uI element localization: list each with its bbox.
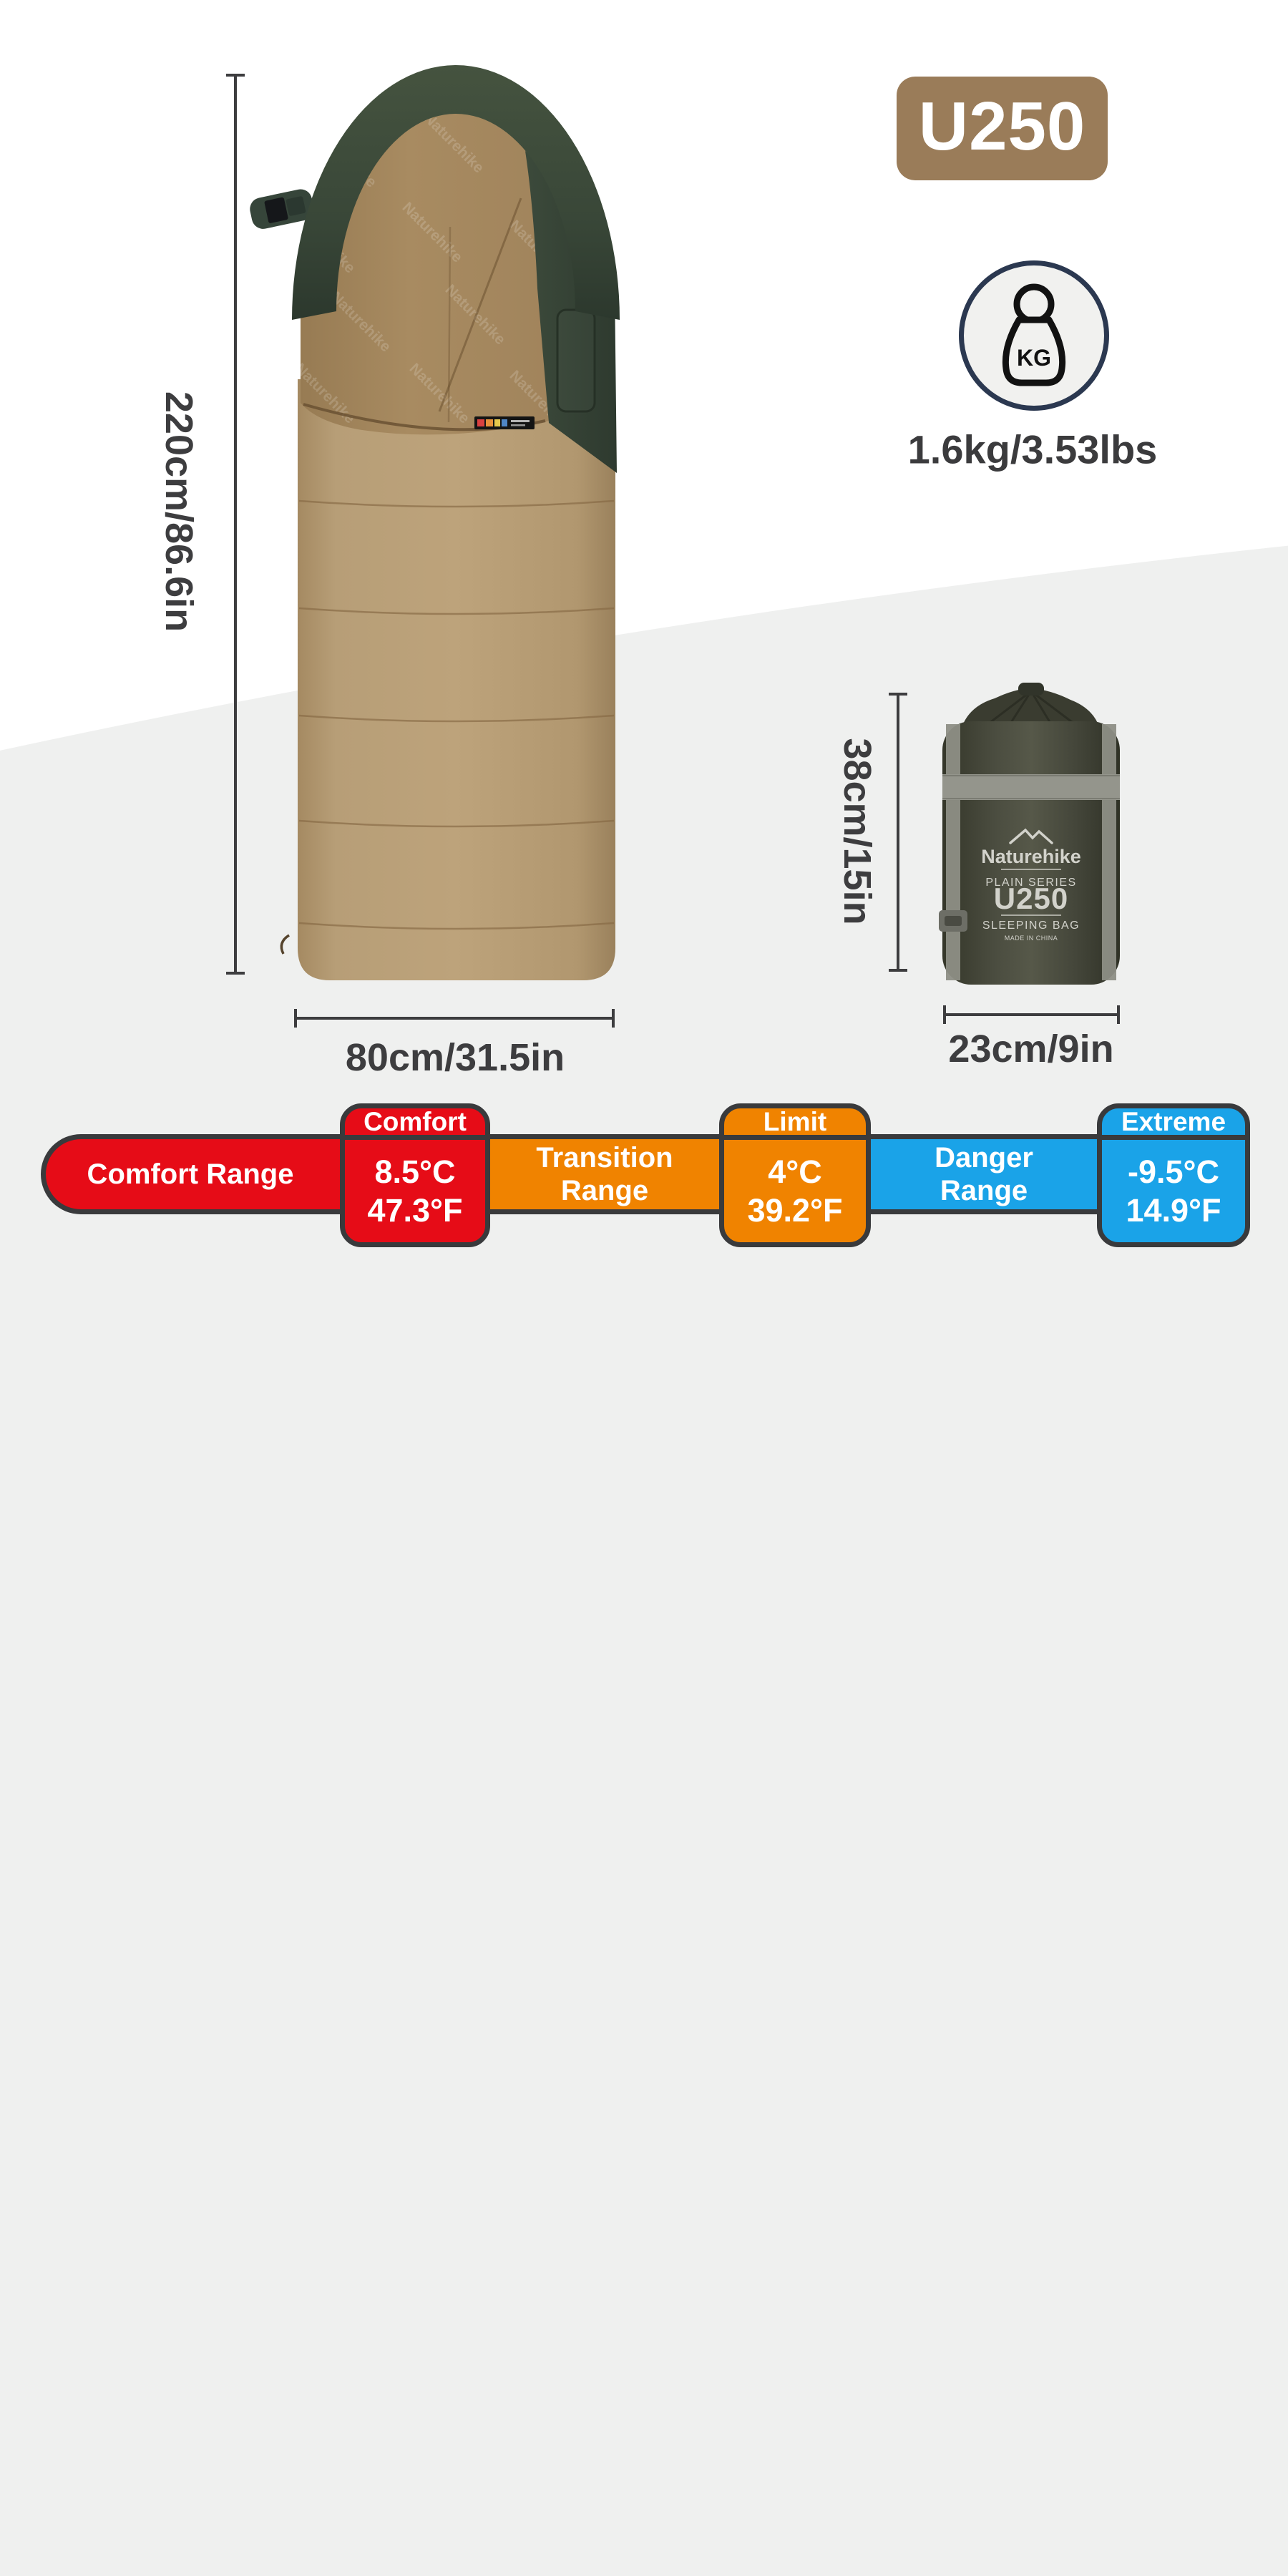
marker-extreme-fahrenheit: 14.9°F (1126, 1194, 1221, 1226)
sack-width-line (945, 1013, 1118, 1016)
sack-strap-left (946, 724, 960, 980)
kg-weight-icon: KG (987, 278, 1080, 393)
model-badge: U250 (897, 77, 1108, 180)
sack-print: Naturehike PLAIN SERIES U250 SLEEPING BA… (981, 830, 1081, 942)
sack-strap-horizontal (942, 774, 1120, 800)
stuff-sack-illustration: Naturehike PLAIN SERIES U250 SLEEPING BA… (930, 680, 1131, 995)
segment-transition-range: Transition Range (504, 1141, 705, 1207)
weight-value: 1.6kg/3.53lbs (908, 426, 1158, 473)
marker-comfort: Comfort 8.5°C 47.3°F (340, 1103, 490, 1247)
sleeping-bag-illustration: Naturehike Naturehike Naturehike Natureh… (236, 61, 630, 991)
segment-comfort-range: Comfort Range (87, 1158, 294, 1191)
marker-extreme-celsius: -9.5°C (1128, 1156, 1219, 1188)
segment-danger-range: Danger Range (912, 1141, 1055, 1207)
model-badge-label: U250 (919, 87, 1086, 170)
sack-drawcord-knot (1018, 683, 1044, 696)
bag-label-strip (474, 416, 535, 429)
marker-limit-label: Limit (724, 1108, 866, 1135)
marker-separator (1101, 1135, 1246, 1140)
bag-height-line-cap-top (226, 74, 245, 77)
sack-brand: Naturehike (981, 846, 1081, 867)
bag-width-line (296, 1017, 613, 1020)
kg-icon-label: KG (1017, 345, 1051, 371)
marker-extreme: Extreme -9.5°C 14.9°F (1097, 1103, 1250, 1247)
marker-limit-fahrenheit: 39.2°F (747, 1194, 842, 1226)
bag-height-line (234, 74, 237, 975)
sack-height-line-cap-top (889, 693, 907, 696)
shell-pocket (557, 310, 595, 411)
sack-width-line-cap-left (943, 1005, 946, 1024)
bag-width-line-cap-right (612, 1009, 615, 1028)
bag-lower-body (281, 379, 615, 980)
sack-width-line-cap-right (1117, 1005, 1120, 1024)
marker-extreme-label: Extreme (1102, 1108, 1245, 1135)
marker-separator (723, 1135, 867, 1140)
bag-height-line-cap-bottom (226, 972, 245, 975)
marker-comfort-label: Comfort (345, 1108, 485, 1135)
sack-model: U250 (994, 882, 1068, 915)
sack-height-line (897, 693, 899, 972)
sack-origin: MADE IN CHINA (1005, 935, 1058, 942)
sack-width-label: 23cm/9in (948, 1027, 1113, 1071)
sack-height-label: 38cm/15in (835, 738, 879, 924)
sack-strap-right (1102, 724, 1116, 980)
marker-comfort-celsius: 8.5°C (374, 1156, 455, 1188)
weight-icon-circle: KG (959, 260, 1109, 411)
sack-height-line-cap-bottom (889, 969, 907, 972)
sack-type: SLEEPING BAG (982, 919, 1080, 932)
bag-width-label: 80cm/31.5in (346, 1035, 565, 1080)
marker-limit-celsius: 4°C (768, 1156, 822, 1188)
bag-width-line-cap-left (294, 1009, 297, 1028)
marker-separator (343, 1135, 487, 1140)
zipper-pull (281, 935, 289, 954)
marker-limit: Limit 4°C 39.2°F (719, 1103, 871, 1247)
bag-height-label: 220cm/86.6in (157, 391, 201, 632)
marker-comfort-fahrenheit: 47.3°F (367, 1194, 462, 1226)
